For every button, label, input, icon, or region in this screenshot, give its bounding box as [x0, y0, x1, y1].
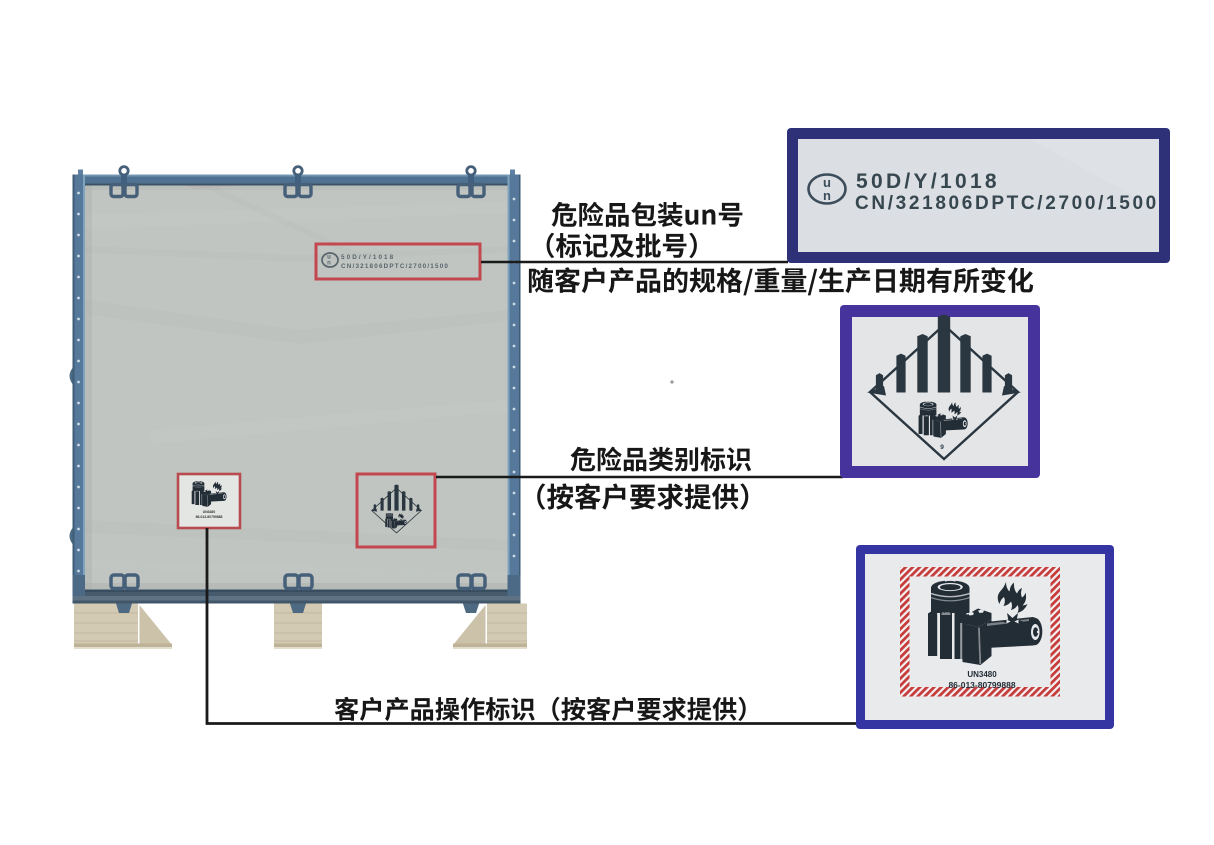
svg-text:CN/321806DPTC/2700/1500: CN/321806DPTC/2700/1500 [341, 263, 449, 270]
svg-text:UN3480: UN3480 [203, 510, 216, 514]
svg-text:n: n [327, 261, 331, 267]
svg-text:86-013-80799888: 86-013-80799888 [196, 515, 223, 519]
svg-text:UN3480: UN3480 [967, 670, 997, 679]
svg-text:50D/Y/1018: 50D/Y/1018 [341, 254, 395, 261]
svg-text:9: 9 [940, 444, 944, 451]
svg-text:50D/Y/1018: 50D/Y/1018 [856, 170, 1000, 193]
svg-text:n: n [823, 188, 831, 203]
svg-text:86-013-80799888: 86-013-80799888 [948, 680, 1015, 690]
svg-text:CN/321806DPTC/2700/1500: CN/321806DPTC/2700/1500 [855, 193, 1159, 214]
